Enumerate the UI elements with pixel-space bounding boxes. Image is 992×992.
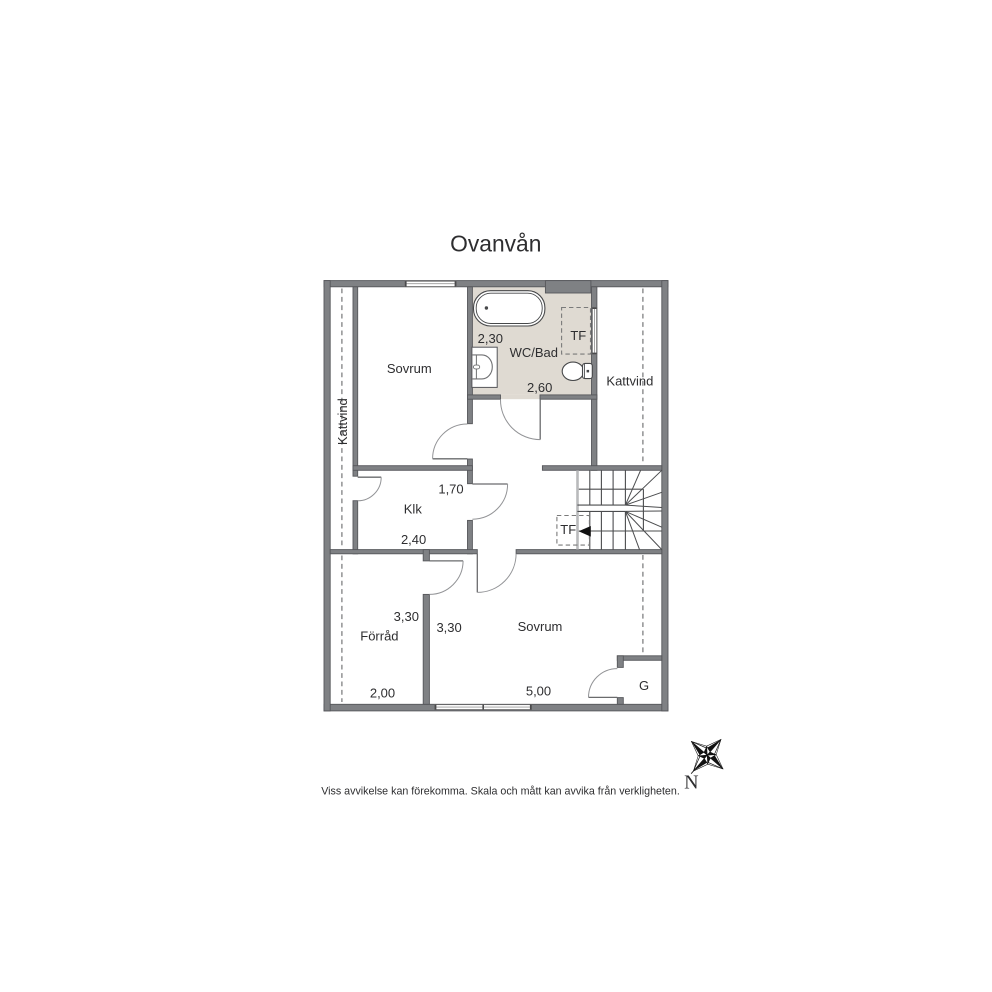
svg-text:3,30: 3,30 xyxy=(436,620,461,635)
svg-text:WC/Bad: WC/Bad xyxy=(510,345,558,360)
svg-text:Kattvind: Kattvind xyxy=(606,373,653,388)
svg-text:Klk: Klk xyxy=(404,502,423,517)
svg-text:2,30: 2,30 xyxy=(478,331,503,346)
svg-text:5,00: 5,00 xyxy=(526,683,551,698)
svg-text:N: N xyxy=(684,772,698,794)
svg-text:2,00: 2,00 xyxy=(370,686,395,701)
svg-text:3,30: 3,30 xyxy=(394,609,419,624)
svg-text:Förråd: Förråd xyxy=(360,629,398,644)
svg-text:1,70: 1,70 xyxy=(438,481,463,496)
svg-text:TF: TF xyxy=(560,522,576,537)
svg-text:2,40: 2,40 xyxy=(401,532,426,547)
svg-text:Sovrum: Sovrum xyxy=(387,361,432,376)
svg-text:Kattvind: Kattvind xyxy=(335,398,350,445)
svg-text:2,60: 2,60 xyxy=(527,380,552,395)
svg-text:Ovanvån: Ovanvån xyxy=(450,230,541,256)
svg-text:TF: TF xyxy=(570,328,586,343)
svg-text:Viss avvikelse kan förekomma.: Viss avvikelse kan förekomma. Skala och … xyxy=(321,785,680,797)
svg-text:Sovrum: Sovrum xyxy=(518,619,563,634)
svg-text:G: G xyxy=(639,678,649,693)
